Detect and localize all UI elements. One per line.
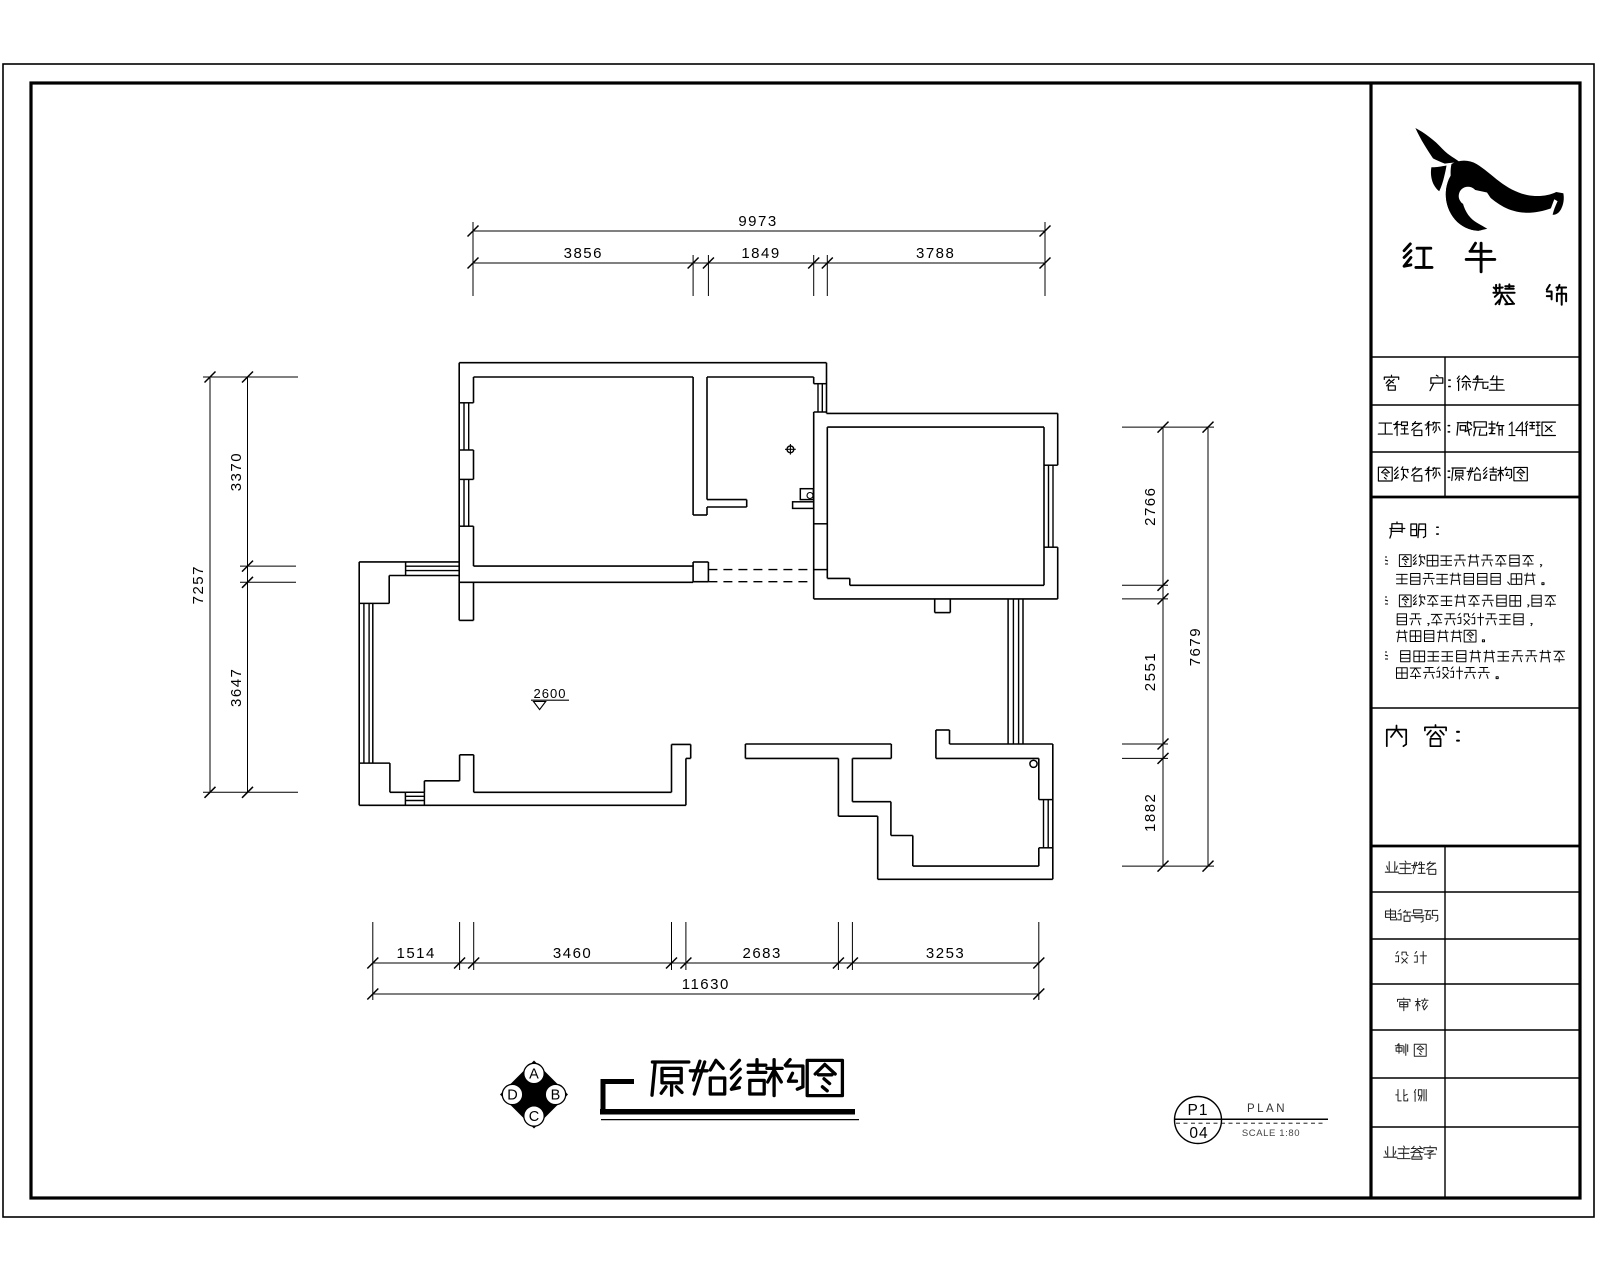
svg-text:2600: 2600 xyxy=(534,686,567,701)
svg-text:11630: 11630 xyxy=(682,976,730,993)
svg-text:P1: P1 xyxy=(1188,1102,1209,1119)
svg-text:A: A xyxy=(529,1067,539,1083)
svg-text:2683: 2683 xyxy=(743,945,782,962)
svg-text:B: B xyxy=(551,1088,561,1104)
svg-text:1514: 1514 xyxy=(397,945,436,962)
svg-text:D: D xyxy=(507,1088,517,1104)
svg-text:3370: 3370 xyxy=(228,452,245,491)
svg-text:7679: 7679 xyxy=(1187,627,1204,666)
svg-text:3253: 3253 xyxy=(926,945,965,962)
svg-text:1882: 1882 xyxy=(1142,793,1159,832)
svg-text:7257: 7257 xyxy=(190,565,207,604)
svg-text:2551: 2551 xyxy=(1142,652,1159,691)
svg-text:9973: 9973 xyxy=(738,213,777,230)
svg-text:3788: 3788 xyxy=(916,245,955,262)
svg-text:SCALE 1:80: SCALE 1:80 xyxy=(1242,1128,1300,1139)
svg-text:3647: 3647 xyxy=(228,668,245,707)
svg-text:3856: 3856 xyxy=(564,245,603,262)
svg-text:3460: 3460 xyxy=(553,945,592,962)
svg-text:C: C xyxy=(529,1109,539,1125)
svg-text:PLAN: PLAN xyxy=(1247,1103,1287,1115)
svg-text:04: 04 xyxy=(1189,1125,1208,1142)
svg-text:2766: 2766 xyxy=(1142,487,1159,526)
svg-text:1849: 1849 xyxy=(741,245,780,262)
